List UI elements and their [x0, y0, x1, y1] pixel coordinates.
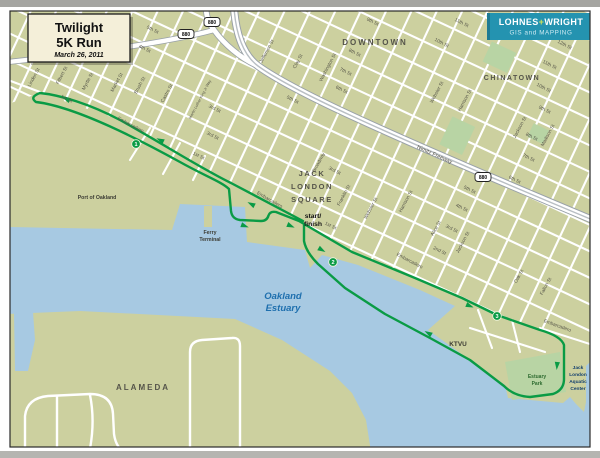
port-of-oakland-label: Port of Oakland: [78, 195, 117, 201]
event-date: March 26, 2011: [54, 52, 103, 59]
jack-london-square-label: JACK: [299, 169, 326, 178]
highway-shield-880: 880: [475, 173, 491, 182]
estuary-park-label: Park: [532, 381, 543, 387]
alameda-label: ALAMEDA: [116, 383, 170, 392]
highway-shield-880: 880: [178, 30, 194, 39]
event-title: Twilight: [55, 20, 104, 35]
start-finish-label: finish: [304, 221, 322, 228]
event-title: 5K Run: [56, 35, 102, 50]
shield-label: 880: [182, 32, 191, 38]
aquatic-center-label: London: [569, 372, 587, 378]
ferry-terminal-label: Terminal: [199, 237, 221, 243]
page-top-strip: [0, 0, 600, 7]
jack-london-square-label: LONDON: [291, 182, 333, 191]
mile-marker-number: 1: [134, 142, 137, 148]
map-canvas: 880 880 880 123 Linden StFilbert StMyrt: [0, 0, 600, 458]
aquatic-center-label: Center: [570, 386, 585, 392]
mile-marker-number: 2: [331, 260, 334, 266]
logo-firm-name: LOHNES+WRIGHT: [499, 17, 584, 27]
title-box: Twilight 5K Run March 26, 2011: [28, 14, 133, 65]
logo-tagline: GIS and MAPPING: [510, 30, 573, 37]
estuary-park-label: Estuary: [528, 374, 547, 380]
mile-marker-number: 3: [495, 314, 498, 320]
mile-marker: 1: [132, 140, 141, 149]
shield-label: 880: [479, 175, 488, 181]
downtown-label: DOWNTOWN: [342, 38, 408, 47]
logo: LOHNES+WRIGHT GIS and MAPPING: [487, 13, 592, 40]
chinatown-label: CHINATOWN: [484, 75, 540, 82]
shield-label: 880: [208, 20, 217, 26]
ferry-pier: [204, 206, 212, 227]
oakland-estuary-label: Oakland: [264, 291, 302, 302]
mile-marker: 3: [493, 312, 502, 321]
mile-marker: 2: [329, 258, 338, 267]
ferry-terminal-label: Ferry: [204, 230, 217, 236]
highway-shield-880: 880: [204, 18, 220, 27]
ktvu-label: KTVU: [449, 341, 467, 348]
aquatic-center-label: Jack: [573, 365, 584, 371]
aquatic-center-label: Aquatic: [569, 379, 587, 385]
map-page: 880 880 880 123 Linden StFilbert StMyrt: [0, 0, 600, 458]
jack-london-square-label: SQUARE: [291, 195, 333, 204]
start-finish-label: start/: [305, 213, 322, 220]
page-bottom-strip: [0, 451, 600, 458]
oakland-estuary-label: Estuary: [266, 303, 302, 314]
